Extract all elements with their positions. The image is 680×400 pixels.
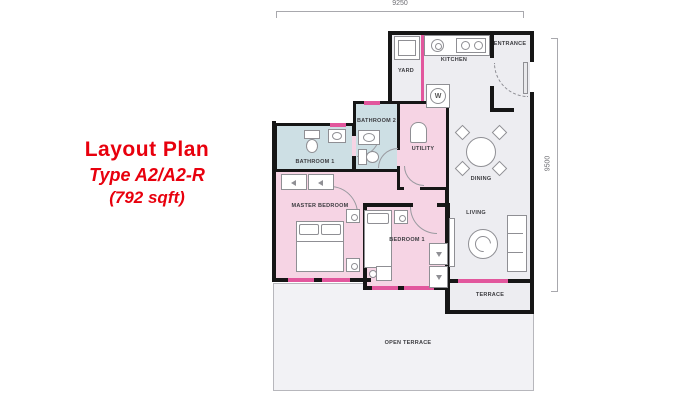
label-utility: UTILITY — [399, 146, 447, 152]
window-bathroom1 — [330, 123, 346, 127]
label-bedroom1: BEDROOM 1 — [382, 237, 432, 243]
window-master-1 — [288, 278, 314, 282]
nightstand-icon — [346, 209, 360, 223]
plan-type: Type A2/A2-R — [68, 165, 226, 186]
dining-table-icon — [466, 137, 496, 167]
plan-title-block: Layout Plan Type A2/A2-R (792 sqft) — [68, 138, 226, 208]
hanger-icon — [436, 275, 442, 280]
window-living — [458, 279, 508, 283]
water-heater-icon — [410, 122, 427, 143]
kitchen-sink-icon — [431, 39, 444, 52]
sofa-icon — [507, 215, 527, 272]
floorplan-page: Layout Plan Type A2/A2-R (792 sqft) 9250… — [0, 0, 680, 400]
laundry-tub-basin-icon — [398, 40, 416, 56]
entrance-door-leaf-icon — [523, 62, 528, 94]
bedroom1-wardrobe-icon — [429, 266, 448, 288]
tv-console-icon — [449, 218, 455, 267]
wall-bedroom1-top — [363, 203, 413, 207]
bathroom2-basin-icon — [363, 133, 375, 142]
dimension-height-label: 9500 — [545, 144, 552, 184]
window-bedroom1-1 — [372, 286, 398, 290]
wall-master-left — [272, 121, 276, 282]
door-gap-entrance — [530, 62, 534, 92]
dimension-width-bracket — [276, 11, 524, 18]
stove-burner-icon — [474, 41, 483, 50]
window-master-2 — [322, 278, 350, 282]
bathroom1-toilet-bowl-icon — [306, 139, 318, 153]
nightstand-icon — [394, 210, 408, 224]
dimension-height-bracket — [551, 38, 558, 292]
washer-icon: W — [426, 84, 450, 108]
pillow-icon — [367, 213, 389, 224]
wall-hall-right — [445, 188, 449, 205]
door-gap-utility — [404, 187, 420, 191]
bedroom1-wardrobe-icon — [429, 243, 448, 265]
label-master-bedroom: MASTER BEDROOM — [286, 203, 354, 209]
door-gap-bathroom1 — [352, 136, 356, 156]
bathroom2-toilet-bowl-icon — [366, 151, 379, 163]
bathroom1-basin-icon — [332, 132, 342, 140]
label-kitchen: KITCHEN — [433, 57, 475, 63]
dressing-chair-icon — [369, 270, 377, 278]
stove-burner-icon — [461, 41, 470, 50]
plan-title: Layout Plan — [68, 138, 226, 162]
dressing-table-icon — [376, 266, 392, 281]
nightstand-icon — [346, 258, 360, 272]
plan-area: (792 sqft) — [68, 188, 226, 208]
wall-terrace-bottom — [445, 310, 534, 314]
bathroom1-toilet-tank-icon — [304, 130, 320, 139]
hanger-icon — [318, 180, 323, 186]
label-open-terrace: OPEN TERRACE — [368, 340, 448, 346]
blanket-line — [297, 241, 343, 242]
label-bathroom1: BATHROOM 1 — [278, 159, 352, 165]
master-wardrobe-icon — [281, 174, 307, 190]
window-bathroom2 — [364, 101, 380, 105]
washer-glyph: W — [430, 88, 446, 104]
hanger-icon — [291, 180, 296, 186]
label-living: LIVING — [458, 210, 494, 216]
sofa-cushion-line — [507, 252, 523, 253]
hanger-icon — [436, 252, 442, 257]
label-bathroom2: BATHROOM 2 — [353, 118, 400, 124]
master-wardrobe-icon — [308, 174, 334, 190]
sofa-cushion-line — [507, 233, 523, 234]
pillow-icon — [299, 224, 319, 235]
pillow-icon — [321, 224, 341, 235]
label-dining: DINING — [463, 176, 499, 182]
wall-entrance-bottom — [490, 108, 514, 112]
label-terrace: TERRACE — [466, 292, 514, 298]
dimension-width-label: 9250 — [276, 0, 524, 7]
label-yard: YARD — [390, 68, 422, 74]
label-entrance: ENTRANCE — [491, 41, 529, 47]
